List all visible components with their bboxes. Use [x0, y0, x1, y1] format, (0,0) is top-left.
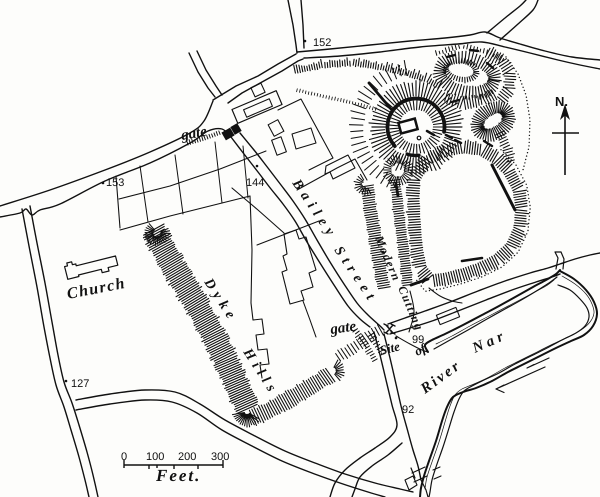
svg-text:200: 200 [178, 451, 196, 463]
svg-text:300: 300 [211, 451, 229, 463]
svg-text:0: 0 [121, 451, 127, 463]
svg-text:127: 127 [71, 378, 89, 390]
svg-text:N.: N. [555, 94, 568, 109]
svg-text:152: 152 [313, 37, 331, 49]
svg-text:Feet.: Feet. [155, 466, 201, 485]
svg-text:144: 144 [246, 177, 264, 189]
svg-text:92: 92 [402, 404, 414, 416]
svg-text:153: 153 [106, 177, 124, 189]
svg-text:99: 99 [412, 334, 424, 346]
svg-text:100: 100 [146, 451, 164, 463]
